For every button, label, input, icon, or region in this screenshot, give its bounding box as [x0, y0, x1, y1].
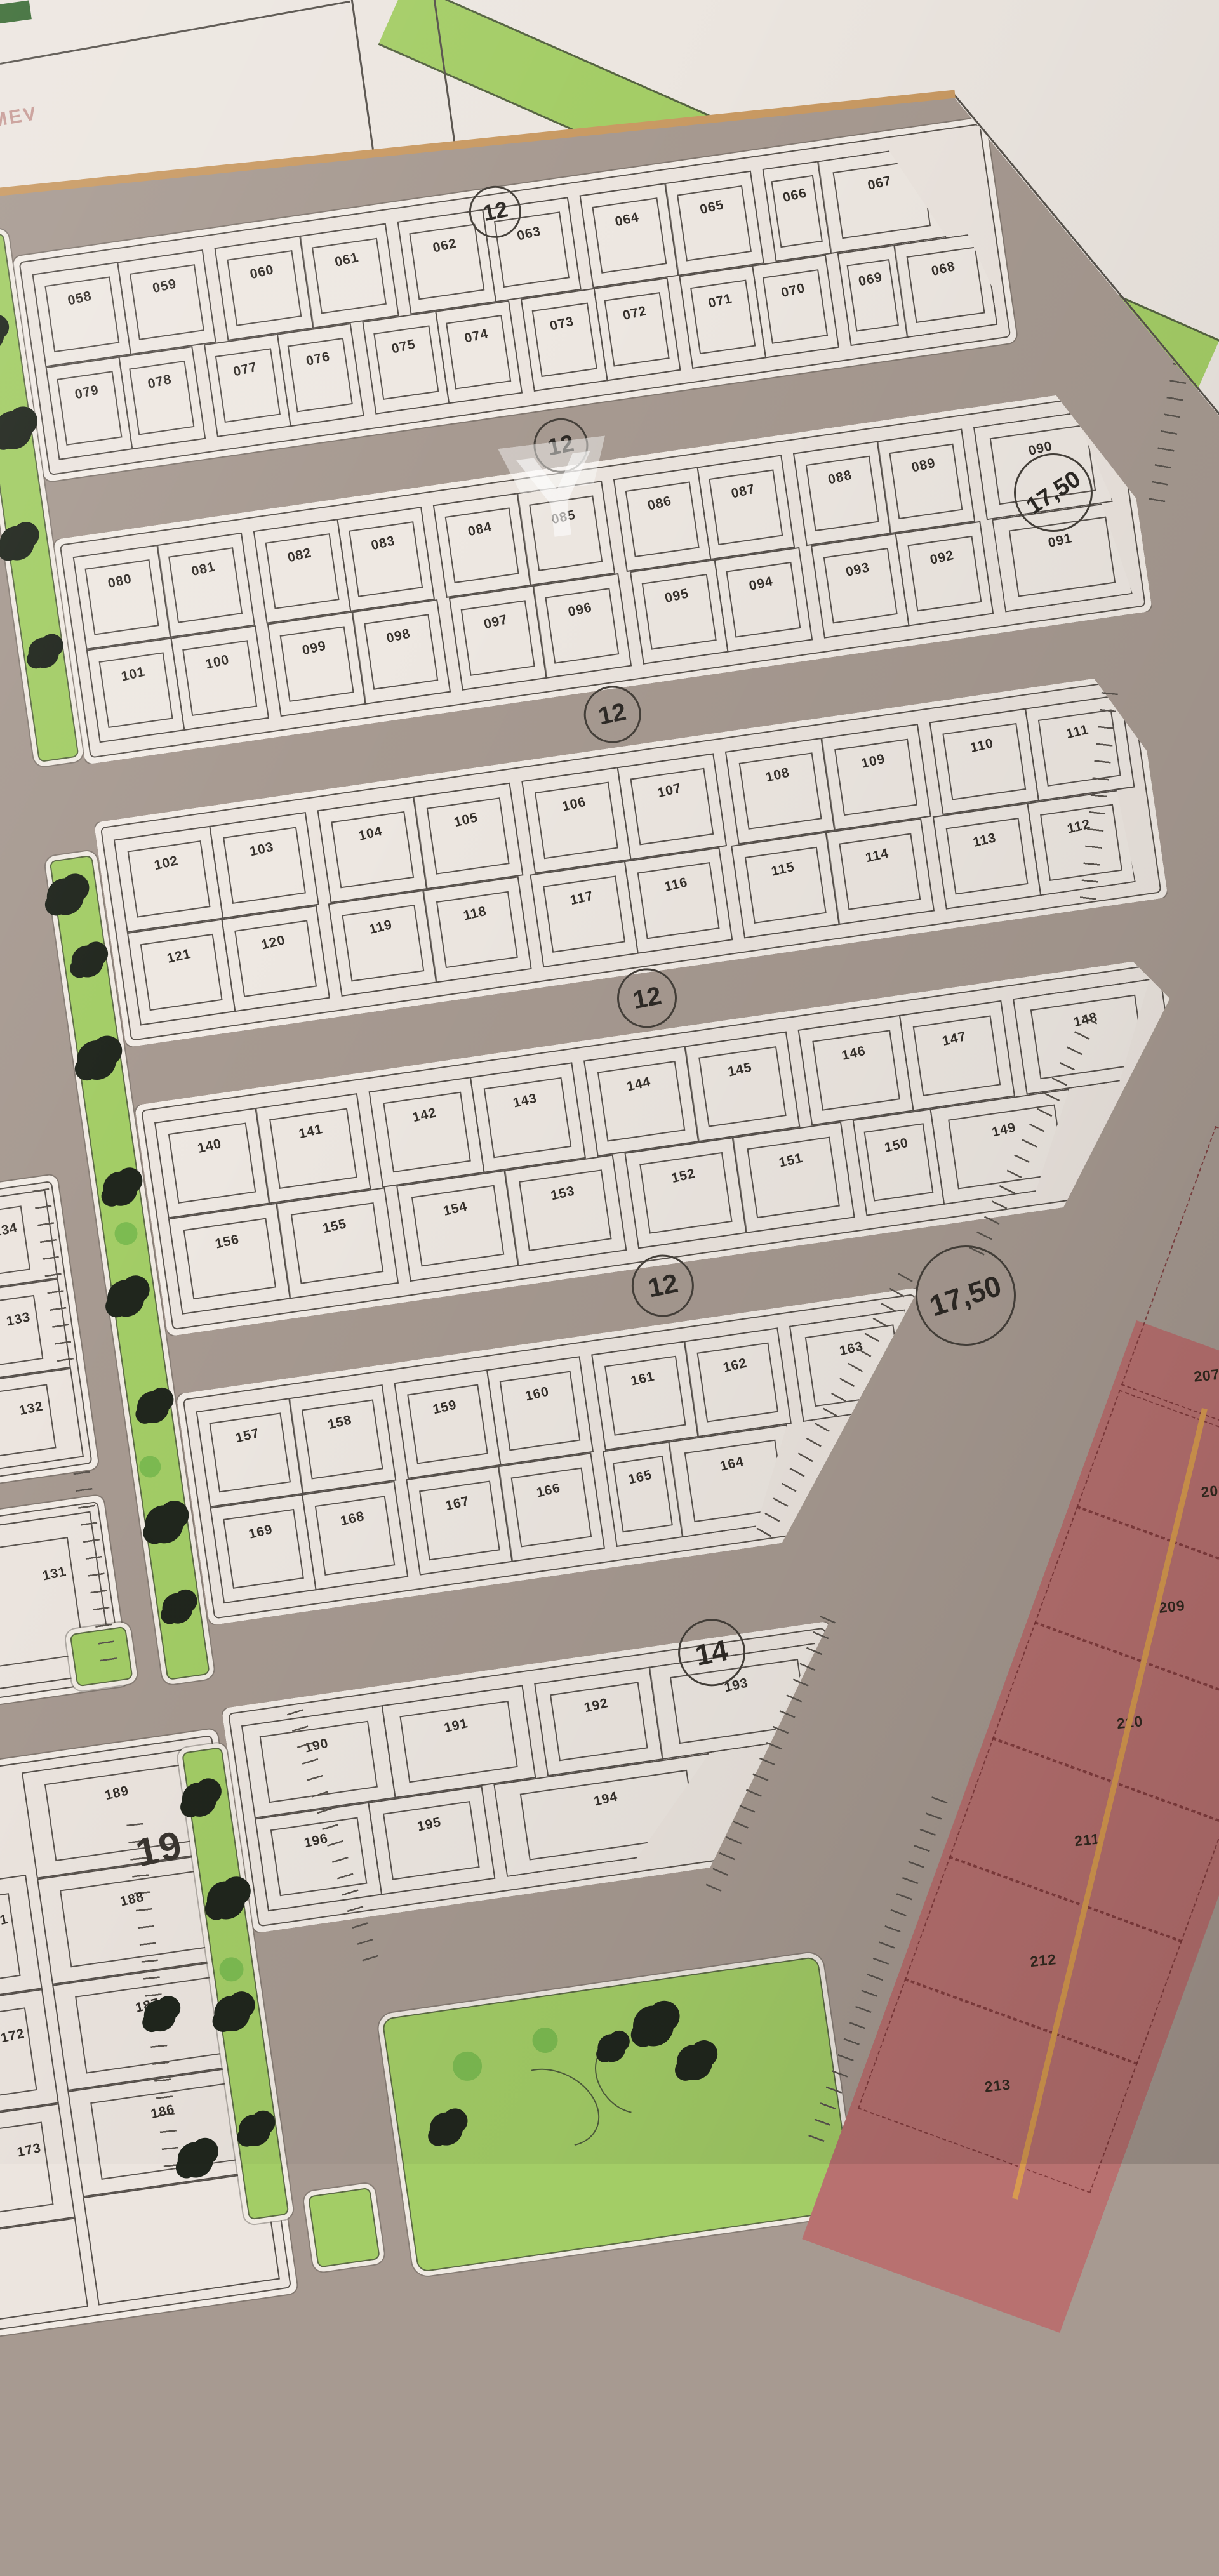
- building-footprint: [419, 1481, 500, 1560]
- building-footprint: [677, 185, 752, 262]
- plot-100: 100: [170, 625, 269, 731]
- building-footprint: [805, 455, 879, 531]
- plot-152: 152: [624, 1137, 747, 1249]
- plot-168: 168: [302, 1481, 409, 1591]
- plot-number: 213: [984, 2076, 1012, 2095]
- plot-pair: 073072: [521, 277, 681, 392]
- building-footprint: [744, 846, 827, 924]
- building-footprint: [545, 588, 619, 664]
- building-footprint: [592, 197, 667, 274]
- plot-061: 061: [299, 223, 399, 329]
- plot-pair: 071070: [679, 255, 839, 369]
- plot-076: 076: [277, 323, 364, 427]
- road-number-label: 12: [545, 430, 576, 461]
- plot-166: 166: [498, 1452, 605, 1562]
- building-footprint: [913, 1016, 1001, 1096]
- building-footprint: [0, 2007, 37, 2108]
- plot-068: 068: [893, 232, 997, 338]
- building-footprint: [127, 840, 210, 918]
- plot-140: 140: [154, 1108, 270, 1219]
- plot-154: 154: [396, 1170, 519, 1282]
- building-footprint: [812, 1030, 900, 1111]
- plot-164: 164: [668, 1424, 801, 1537]
- plot-169: 169: [210, 1494, 317, 1604]
- road-width-label: 17,50: [926, 1268, 1006, 1324]
- building-footprint: [315, 1496, 396, 1575]
- plot-064: 064: [580, 183, 679, 288]
- building-footprint: [269, 1108, 357, 1189]
- plot-161: 161: [591, 1341, 699, 1451]
- road-width-circle: 17,50: [916, 1245, 1016, 1346]
- building-footprint: [227, 250, 302, 326]
- plot-110: 110: [929, 708, 1039, 816]
- road-number-label: 12: [481, 197, 510, 227]
- plot-119: 119: [328, 890, 437, 997]
- building-footprint: [0, 1205, 30, 1295]
- plot-086: 086: [613, 467, 711, 572]
- building-footprint: [690, 279, 756, 354]
- building-footprint: [613, 1456, 673, 1532]
- plot-081: 081: [156, 533, 255, 638]
- building-footprint: [288, 338, 353, 413]
- building-footprint: [832, 159, 931, 239]
- plot-101: 101: [86, 637, 185, 743]
- plot-151: 151: [732, 1122, 855, 1233]
- plot-107: 107: [616, 753, 727, 860]
- plot-pair: 079078: [46, 346, 206, 460]
- building-footprint: [846, 259, 899, 332]
- plot-157: 157: [196, 1398, 304, 1508]
- plot-094: 094: [714, 547, 813, 653]
- building-footprint: [0, 1893, 21, 1994]
- plot-158: 158: [288, 1384, 396, 1494]
- boundary-line: [0, 1, 350, 65]
- plot-147: 147: [899, 1000, 1015, 1112]
- building-footprint: [129, 264, 204, 340]
- block-5-inner: 157158159160161162163169168167166165164: [183, 1294, 947, 1619]
- plot-unlabeled: [0, 2217, 88, 2330]
- plot-number: 212: [1029, 1951, 1057, 1970]
- building-footprint: [445, 507, 519, 583]
- building-footprint: [763, 269, 828, 344]
- plot-120: 120: [221, 905, 330, 1012]
- plot-160: 160: [486, 1356, 594, 1466]
- building-footprint: [864, 1124, 933, 1202]
- plot-089: 089: [877, 428, 975, 534]
- building-footprint: [697, 1343, 778, 1422]
- building-footprint: [771, 175, 823, 248]
- road-width-circle: 17,50: [1014, 453, 1093, 532]
- building-footprint: [140, 934, 223, 1011]
- plot-078: 078: [118, 346, 206, 449]
- plot-088: 088: [793, 441, 891, 546]
- building-footprint: [234, 920, 317, 997]
- building-footprint: [312, 237, 387, 314]
- road-width-label: 17,50: [1022, 465, 1086, 520]
- road-number-label: 12: [596, 698, 629, 731]
- building-footprint: [223, 1509, 303, 1588]
- plot-074: 074: [435, 300, 523, 404]
- plot-132: 132: [0, 1368, 84, 1490]
- building-footprint: [98, 652, 173, 728]
- plot-155: 155: [276, 1187, 399, 1299]
- plot-162: 162: [684, 1327, 792, 1437]
- plot-070: 070: [752, 255, 839, 358]
- plot-number: 209: [1158, 1597, 1186, 1617]
- plot-116: 116: [624, 847, 733, 954]
- building-footprint: [625, 481, 700, 557]
- plot-143: 143: [470, 1062, 586, 1173]
- building-footprint: [427, 797, 510, 875]
- plot-pair: 077076: [204, 323, 364, 437]
- building-footprint: [407, 1384, 488, 1464]
- plot-065: 065: [664, 171, 764, 276]
- building-footprint: [223, 827, 306, 904]
- building-footprint: [1040, 804, 1122, 881]
- road-number-label: 14: [693, 1633, 731, 1673]
- building-footprint: [44, 276, 119, 352]
- plot-108: 108: [725, 738, 836, 845]
- building-footprint: [823, 548, 897, 624]
- plot-087: 087: [696, 455, 795, 560]
- plot-085: 085: [516, 481, 615, 586]
- building-footprint: [461, 600, 535, 676]
- building-footprint: [738, 752, 822, 830]
- building-footprint: [209, 1413, 290, 1492]
- building-footprint: [889, 443, 963, 519]
- plot-number: 207: [1193, 1366, 1219, 1386]
- building-footprint: [302, 1400, 383, 1479]
- faded-corner-text: MEV: [0, 103, 39, 132]
- building-footprint: [484, 1077, 571, 1158]
- building-footprint: [399, 1701, 517, 1783]
- plot-095: 095: [630, 559, 729, 665]
- building-footprint: [85, 559, 159, 635]
- building-footprint: [519, 1170, 612, 1251]
- plot-145: 145: [684, 1032, 801, 1143]
- plot-097: 097: [448, 585, 547, 691]
- building-footprint: [168, 1123, 256, 1204]
- building-footprint: [511, 1468, 592, 1547]
- plot-111: 111: [1025, 694, 1135, 802]
- building-footprint: [215, 348, 280, 423]
- building-footprint: [839, 833, 921, 910]
- plot-pair: 075074: [362, 300, 523, 415]
- building-footprint: [499, 1371, 580, 1451]
- building-footprint: [0, 2121, 54, 2222]
- building-footprint: [129, 361, 194, 435]
- plot-192: 192: [534, 1666, 663, 1776]
- building-footprint: [349, 521, 423, 597]
- plot-059: 059: [117, 249, 216, 355]
- building-footprint: [265, 533, 339, 609]
- building-footprint: [183, 640, 257, 716]
- plot-195: 195: [368, 1786, 496, 1895]
- building-footprint: [364, 614, 438, 690]
- plot-058: 058: [32, 262, 131, 367]
- building-footprint: [604, 292, 670, 367]
- plot-104: 104: [317, 796, 428, 903]
- plot-096: 096: [533, 573, 632, 679]
- plot-084: 084: [433, 493, 531, 598]
- plot-159: 159: [394, 1369, 502, 1479]
- building-footprint: [630, 768, 714, 846]
- boundary-line: [350, 0, 381, 197]
- block-5: 157158159160161162163169168167166165164: [176, 1287, 952, 1626]
- plot-106: 106: [521, 767, 632, 874]
- plot-098: 098: [352, 599, 451, 705]
- plot-pair: 069068: [837, 232, 998, 346]
- plot-141: 141: [255, 1093, 371, 1204]
- plot-067: 067: [817, 144, 947, 254]
- plot-109: 109: [820, 724, 931, 831]
- building-footprint: [0, 1295, 43, 1384]
- building-footprint: [383, 1092, 470, 1172]
- building-footprint: [907, 536, 982, 612]
- building-footprint: [535, 781, 618, 859]
- plot-146: 146: [798, 1015, 914, 1126]
- site-plan-photo: { "top_area": { "corner_text": "MEV" }, …: [0, 0, 1219, 2164]
- building-footprint: [604, 1356, 686, 1435]
- building-footprint: [291, 1202, 384, 1284]
- building-footprint: [529, 495, 603, 571]
- plot-121: 121: [127, 919, 236, 1025]
- plot-105: 105: [413, 783, 523, 890]
- plot-093: 093: [811, 533, 910, 639]
- plot-092: 092: [895, 521, 994, 627]
- building-footprint: [639, 1152, 733, 1233]
- plot-080: 080: [73, 545, 171, 650]
- building-footprint: [279, 626, 354, 702]
- building-footprint: [709, 469, 783, 545]
- building-footprint: [0, 1537, 85, 1680]
- plot-072: 072: [593, 277, 681, 381]
- plot-142: 142: [369, 1077, 485, 1188]
- plot-167: 167: [406, 1466, 514, 1576]
- plot-114: 114: [825, 818, 935, 925]
- plot-113: 113: [932, 803, 1041, 910]
- plot-156: 156: [168, 1203, 291, 1315]
- plot-144: 144: [583, 1046, 700, 1157]
- building-footprint: [550, 1682, 648, 1762]
- plot-083: 083: [336, 507, 435, 612]
- plot-115: 115: [731, 832, 840, 938]
- building-footprint: [747, 1137, 840, 1218]
- plot-153: 153: [504, 1155, 627, 1266]
- plot-060: 060: [215, 236, 314, 341]
- building-footprint: [183, 1218, 276, 1299]
- building-footprint: [169, 547, 243, 623]
- building-footprint: [942, 723, 1025, 800]
- building-footprint: [411, 1185, 505, 1266]
- building-footprint: [597, 1061, 685, 1141]
- plot-102: 102: [114, 826, 224, 933]
- plot-118: 118: [422, 876, 531, 983]
- building-footprint: [531, 302, 597, 377]
- building-footprint: [373, 325, 439, 400]
- road-number-label: 12: [630, 981, 663, 1015]
- building-footprint: [520, 1770, 696, 1861]
- building-footprint: [637, 862, 720, 939]
- plot-number: 208: [1200, 1481, 1219, 1501]
- road-number-label: 12: [645, 1268, 680, 1303]
- building-footprint: [906, 246, 985, 323]
- building-footprint: [383, 1801, 480, 1880]
- plot-099: 099: [267, 611, 366, 717]
- left-column-plot-131: 131: [0, 1495, 130, 1722]
- plot-103: 103: [209, 812, 319, 919]
- building-footprint: [726, 562, 801, 638]
- building-footprint: [446, 315, 511, 390]
- building-footprint: [0, 1384, 56, 1473]
- building-footprint: [543, 875, 625, 953]
- building-footprint: [642, 574, 716, 650]
- plot-150: 150: [853, 1108, 945, 1216]
- plot-082: 082: [253, 519, 351, 624]
- building-footprint: [698, 1046, 786, 1127]
- street-number-19: 19: [132, 1822, 187, 1876]
- building-footprint: [410, 223, 484, 300]
- building-footprint: [57, 371, 122, 446]
- building-footprint: [342, 905, 424, 982]
- building-footprint: [331, 811, 414, 888]
- green-strip: [308, 2188, 380, 2268]
- building-footprint: [834, 738, 917, 816]
- corner-green-patch: [0, 0, 32, 23]
- plot-117: 117: [530, 861, 639, 967]
- building-footprint: [436, 891, 519, 968]
- building-footprint: [946, 818, 1029, 895]
